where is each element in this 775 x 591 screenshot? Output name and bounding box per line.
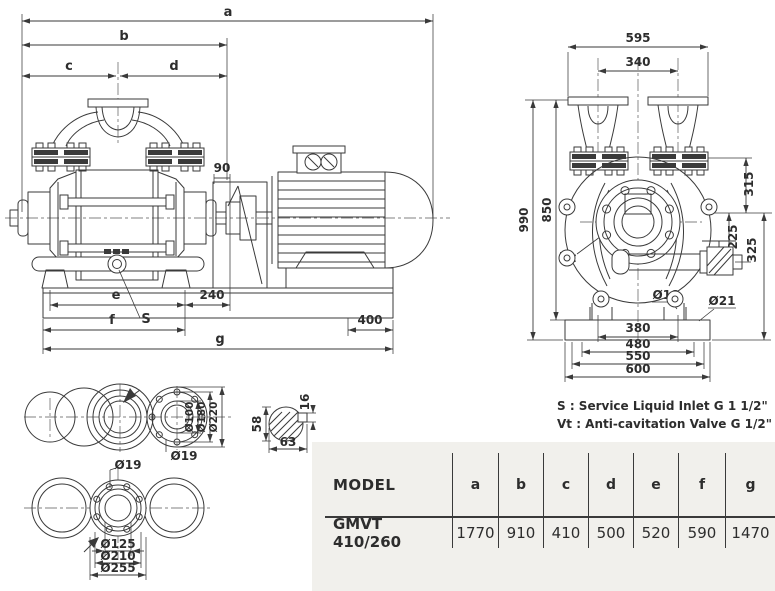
table-cell-f: 590 bbox=[678, 518, 725, 548]
dim-label-d: d bbox=[169, 59, 178, 74]
table-header-model: MODEL bbox=[325, 453, 452, 518]
table-header-g: g bbox=[725, 453, 775, 518]
table-cell-e: 520 bbox=[633, 518, 678, 548]
bottom-ports-detail: Ø19 Ø125 Ø210 Ø255 bbox=[24, 458, 212, 580]
dim-label-400: 400 bbox=[357, 313, 382, 327]
front-view: 595 340 990 850 315 225 325 Vt Ø18 Ø21 3… bbox=[517, 31, 772, 382]
note-service-inlet: S : Service Liquid Inlet G 1 1/2" bbox=[557, 399, 768, 413]
dim-label-16: 16 bbox=[298, 394, 312, 411]
note-anticavitation-valve: Vt : Anti-cavitation Valve G 1/2" bbox=[557, 417, 772, 431]
dim-label-315: 315 bbox=[742, 171, 756, 196]
dim-label-d19-top: Ø19 bbox=[171, 449, 198, 463]
table-header-a: a bbox=[452, 453, 498, 518]
dim-label-d19-bottom: Ø19 bbox=[115, 458, 142, 472]
drawing-sheet: a b c d 90 240 e f S g 400 bbox=[0, 0, 775, 591]
notes: S : Service Liquid Inlet G 1 1/2" Vt : A… bbox=[557, 399, 772, 431]
dim-label-240: 240 bbox=[199, 288, 224, 302]
dim-label-d220: Ø220 bbox=[208, 402, 220, 433]
side-view: a b c d 90 240 e f S g 400 bbox=[5, 5, 450, 354]
table-cell-b: 910 bbox=[498, 518, 543, 548]
service-inlet-label: S bbox=[141, 312, 150, 327]
dim-label-d255: Ø255 bbox=[100, 561, 135, 575]
table-cell-a: 1770 bbox=[452, 518, 498, 548]
dim-label-d180: Ø180 bbox=[196, 402, 208, 433]
dim-label-63: 63 bbox=[280, 435, 297, 449]
table-cell-g: 1470 bbox=[725, 518, 775, 548]
table-cell-c: 410 bbox=[543, 518, 588, 548]
dim-label-600: 600 bbox=[625, 362, 650, 376]
dim-label-b: b bbox=[119, 29, 128, 44]
dim-label-850: 850 bbox=[540, 197, 554, 222]
table-header-c: c bbox=[543, 453, 588, 518]
dim-label-325: 325 bbox=[745, 237, 759, 262]
table-header-e: e bbox=[633, 453, 678, 518]
dim-label-g: g bbox=[215, 332, 224, 347]
dim-label-e: e bbox=[112, 288, 121, 303]
dim-label-595: 595 bbox=[625, 31, 650, 45]
dim-label-550: 550 bbox=[625, 349, 650, 363]
dim-label-380: 380 bbox=[625, 321, 650, 335]
table-header-f: f bbox=[678, 453, 725, 518]
top-ports-detail: Ø100 Ø180 Ø220 Ø19 bbox=[24, 384, 232, 463]
dim-label-d21: Ø21 bbox=[709, 294, 736, 308]
dim-label-a: a bbox=[224, 5, 233, 20]
dim-label-58: 58 bbox=[250, 416, 264, 433]
dim-label-c: c bbox=[65, 59, 73, 74]
shaft-key-detail: 58 63 16 bbox=[238, 394, 316, 456]
dim-label-90: 90 bbox=[214, 161, 231, 175]
dim-label-340: 340 bbox=[625, 55, 650, 69]
table-cell-d: 500 bbox=[588, 518, 633, 548]
dimensions-table: MODEL a b c d e f g GMVT 410/260 1770 91… bbox=[325, 453, 775, 548]
dim-label-d100: Ø100 bbox=[184, 402, 196, 433]
table-header-b: b bbox=[498, 453, 543, 518]
dim-label-225: 225 bbox=[726, 224, 740, 249]
dim-label-f: f bbox=[109, 313, 115, 328]
table-header-d: d bbox=[588, 453, 633, 518]
dim-label-990: 990 bbox=[517, 207, 531, 232]
table-cell-model: GMVT 410/260 bbox=[325, 518, 452, 548]
